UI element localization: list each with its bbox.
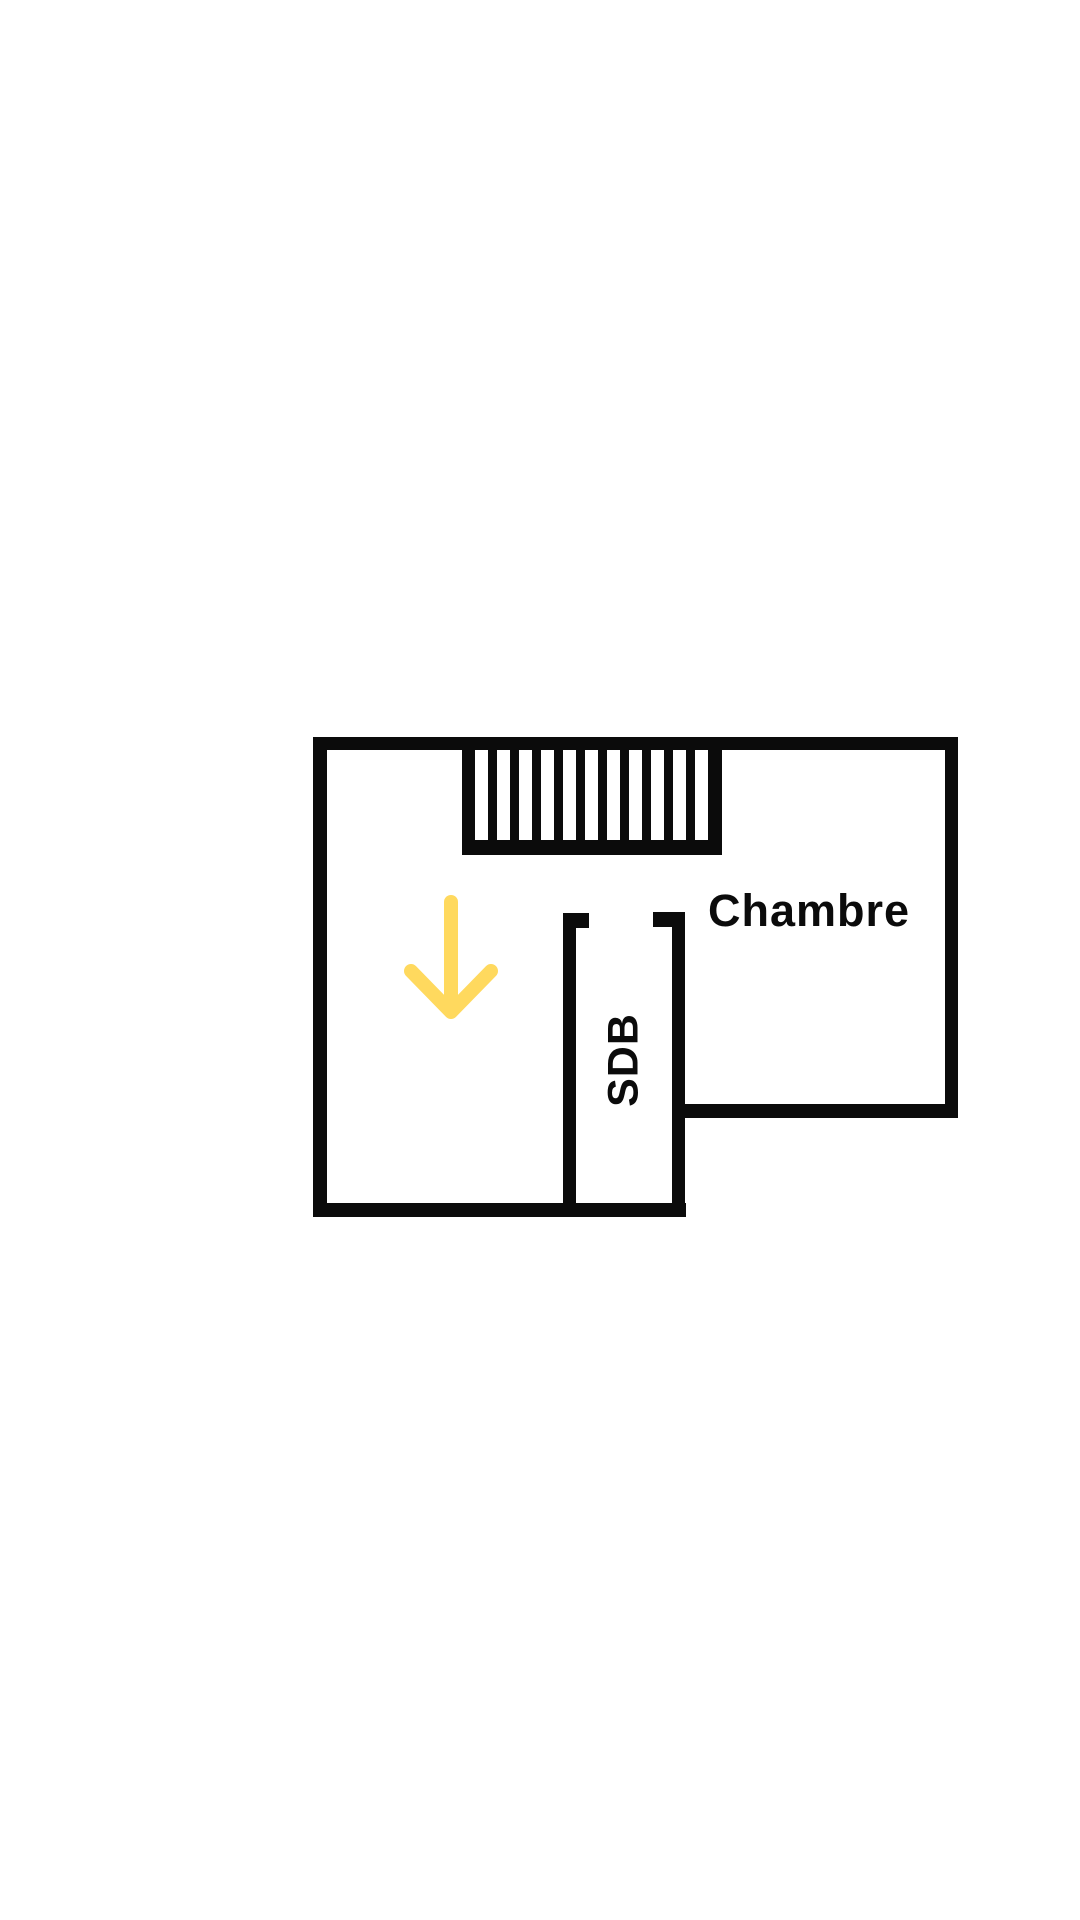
outer-wall-left [313, 737, 327, 1217]
stair-tread [576, 750, 585, 840]
stair-tread [686, 750, 695, 840]
stair-tread [664, 750, 673, 840]
outer-wall-right [945, 737, 958, 1118]
stair-tread [620, 750, 629, 840]
sdb-wall-right [672, 912, 685, 1217]
sdb-wall-left [563, 913, 576, 1217]
outer-wall-top [313, 737, 958, 750]
floor-plan-canvas: Chambre SDB [0, 0, 1080, 1920]
down-arrow-icon [385, 875, 515, 1025]
stair-tread [598, 750, 607, 840]
stair-tread [554, 750, 563, 840]
stair-tread [642, 750, 651, 840]
sdb-label: SDB [603, 1013, 646, 1107]
stair-tread [532, 750, 541, 840]
sdb-wall-right-cap [653, 912, 685, 927]
outer-wall-bottom [313, 1203, 686, 1217]
staircase-treads [475, 750, 708, 840]
stair-tread [510, 750, 519, 840]
staircase-wall-bottom [462, 840, 722, 855]
sdb-wall-left-cap [563, 913, 589, 928]
chambre-bottom-wall [672, 1104, 958, 1118]
stair-tread [488, 750, 497, 840]
chambre-label: Chambre [708, 888, 910, 933]
